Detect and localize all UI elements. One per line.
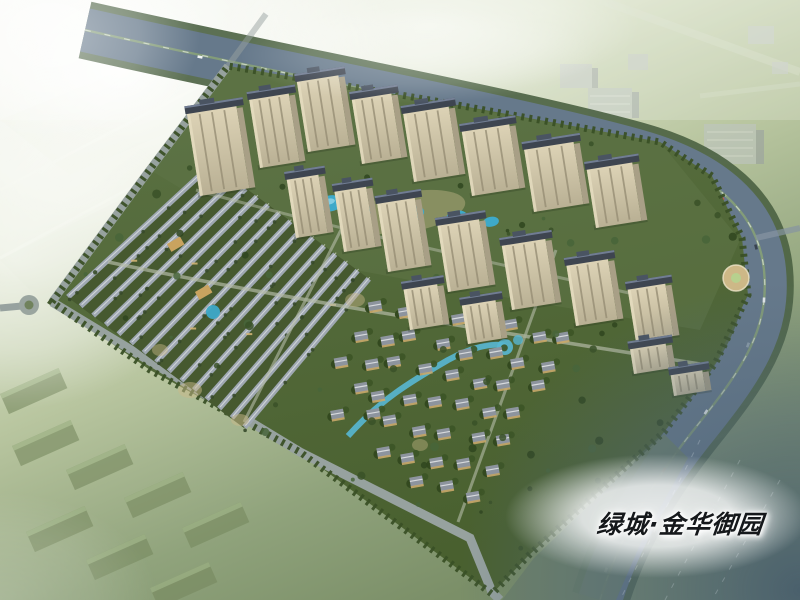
- tree: [351, 478, 355, 482]
- tree: [357, 472, 365, 480]
- tree: [115, 233, 124, 242]
- tree: [729, 233, 737, 241]
- tree: [612, 322, 617, 327]
- tree: [390, 365, 397, 372]
- tree: [245, 321, 254, 330]
- tree: [93, 270, 97, 274]
- tree: [542, 217, 546, 221]
- tree: [123, 315, 129, 321]
- tree: [702, 235, 710, 243]
- tree: [266, 271, 273, 278]
- tree: [458, 183, 464, 189]
- tree: [84, 272, 88, 276]
- tree: [430, 442, 439, 451]
- tree: [519, 222, 525, 228]
- tree: [589, 141, 594, 146]
- tree: [318, 387, 322, 391]
- tree: [694, 200, 701, 207]
- tree: [173, 272, 180, 279]
- tree: [261, 428, 269, 436]
- tree: [567, 239, 575, 247]
- tree: [714, 212, 720, 218]
- tree: [552, 330, 559, 337]
- tree: [483, 378, 490, 385]
- tree: [506, 229, 510, 233]
- tree: [611, 237, 619, 245]
- rowhouse-pool: [206, 305, 220, 319]
- tree: [440, 346, 447, 353]
- tree: [368, 417, 376, 425]
- tree: [416, 502, 421, 507]
- tree: [273, 402, 278, 407]
- tree: [169, 336, 172, 339]
- tree: [242, 252, 249, 259]
- tree: [279, 184, 285, 190]
- tree: [599, 331, 605, 337]
- tree: [421, 462, 428, 469]
- tree: [472, 420, 478, 426]
- tree: [176, 230, 183, 237]
- tree: [214, 363, 220, 369]
- aerial-rendering: 绿城·金华御园: [0, 0, 800, 600]
- tree: [187, 165, 192, 170]
- project-name-text: 绿城·金华御园: [595, 510, 765, 539]
- project-name-caption: 绿城·金华御园: [595, 505, 765, 541]
- tree: [152, 189, 161, 198]
- tree: [469, 444, 477, 452]
- tree: [507, 232, 511, 236]
